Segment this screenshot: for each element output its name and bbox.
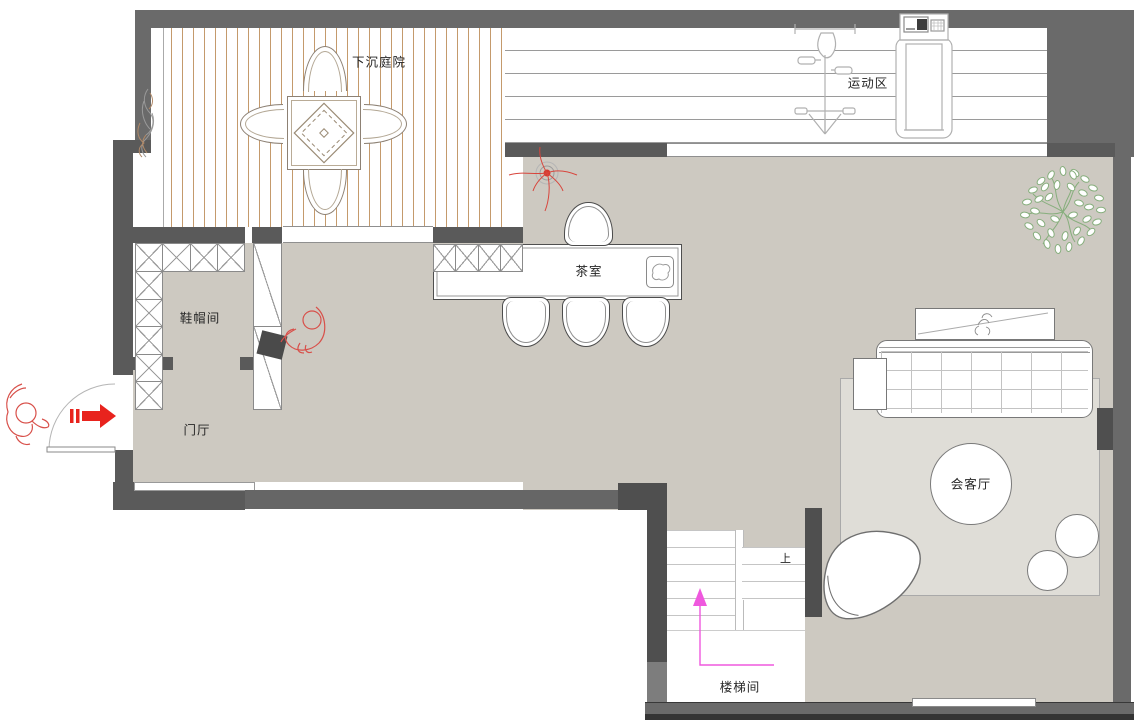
- label-stairwell: 楼梯间: [720, 677, 761, 696]
- courtyard-table-pattern: [288, 97, 360, 169]
- lounge-chair: [811, 517, 935, 637]
- cabinet-cell: [190, 243, 218, 272]
- wall-cloakroom-top-pier: [252, 227, 282, 243]
- wall-foyer-south-mid: [245, 490, 618, 509]
- shelf-cell: [433, 244, 456, 272]
- cabinet-cell: [135, 271, 163, 300]
- wall-under-gym-right: [1047, 143, 1115, 157]
- floor-plan-canvas: 下沉庭院 运动区 茶室 鞋帽间 门厅 会客厅 楼梯间 上: [0, 0, 1134, 720]
- person-sketch-cloakroom: [276, 299, 328, 357]
- label-foyer: 门厅: [183, 420, 210, 439]
- cabinet-cell: [135, 243, 163, 272]
- cabinet-cell: [135, 381, 163, 410]
- wall-bottom-edge: [645, 714, 1134, 720]
- cabinet-cell: [162, 243, 190, 272]
- flower-sketch-tea-corner: [505, 145, 585, 215]
- tea-tray: [646, 256, 674, 288]
- wall-below-courtyard: [433, 227, 523, 243]
- gym-glass-wall: [667, 143, 1047, 157]
- wall-right: [1113, 157, 1131, 715]
- cabinet-cell: [217, 243, 245, 272]
- wall-top-right-block: [1047, 10, 1134, 157]
- wall-stair-west-lower: [647, 662, 667, 702]
- tea-tray-dish: [647, 257, 673, 287]
- ottoman-large: [1055, 514, 1099, 558]
- label-stairs-up: 上: [780, 550, 792, 566]
- wall-top: [135, 10, 1134, 28]
- label-reception: 会客厅: [951, 474, 992, 493]
- window-sill-foyer: [134, 482, 255, 491]
- stair-direction-arrow: [688, 582, 780, 670]
- tea-table-shelf: [433, 244, 523, 272]
- label-gym: 运动区: [848, 73, 889, 92]
- potted-tree: [1013, 162, 1113, 262]
- window-bottom-wall: [912, 698, 1036, 707]
- sofa-cushion-grid: [881, 351, 1088, 413]
- label-cloakroom: 鞋帽间: [180, 308, 221, 327]
- courtyard-plant-sketch: [130, 85, 166, 161]
- ottoman-small: [1027, 550, 1068, 591]
- gym-floor: [505, 28, 1047, 143]
- label-tea-room: 茶室: [575, 261, 602, 280]
- shelf-cell: [478, 244, 501, 272]
- console-table: [915, 308, 1055, 340]
- cloakroom-cabinet-top: [135, 243, 245, 272]
- label-courtyard: 下沉庭院: [352, 52, 406, 71]
- courtyard-glass-door: [283, 226, 433, 243]
- wall-stair-corner: [618, 483, 667, 510]
- side-table: [853, 358, 887, 410]
- cabinet-cell: [135, 299, 163, 328]
- wall-cloakroom-top: [133, 227, 245, 243]
- sofa: [876, 340, 1093, 418]
- wall-stair-west: [647, 510, 667, 662]
- shelf-cell: [500, 244, 523, 272]
- entry-arrow: [70, 404, 116, 428]
- cabinet-cell: [135, 354, 163, 383]
- cloakroom-cabinet-left: [135, 271, 163, 410]
- person-sketch-entering: [2, 378, 52, 450]
- cabinet-cell: [135, 326, 163, 355]
- courtyard-table: [287, 96, 361, 170]
- treadmill: [890, 12, 958, 140]
- wall-left-column: [113, 145, 133, 375]
- shelf-cell: [455, 244, 478, 272]
- wall-reception-pier: [1097, 408, 1113, 450]
